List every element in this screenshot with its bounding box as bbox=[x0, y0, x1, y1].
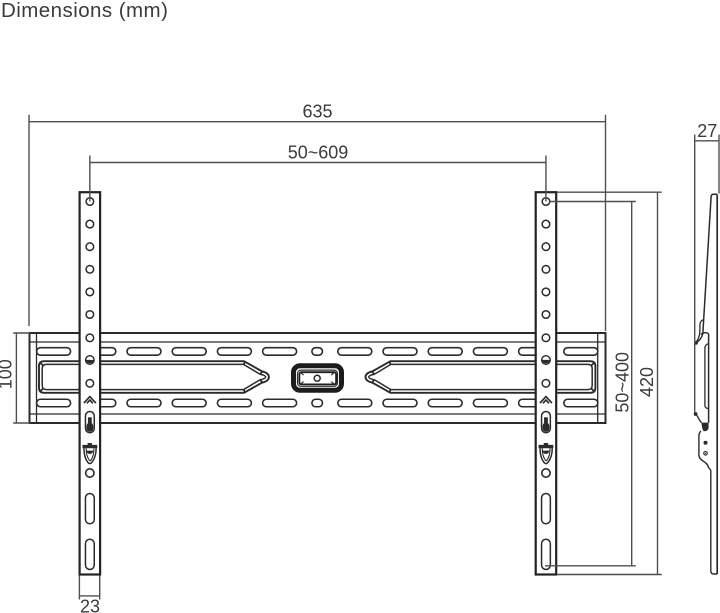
svg-text:Dimensions (mm): Dimensions (mm) bbox=[1, 0, 168, 22]
svg-text:50~609: 50~609 bbox=[288, 142, 349, 162]
svg-text:635: 635 bbox=[302, 102, 332, 122]
svg-text:50~400: 50~400 bbox=[612, 352, 632, 413]
svg-text:23: 23 bbox=[80, 597, 100, 613]
svg-text:27: 27 bbox=[697, 121, 717, 141]
svg-text:100: 100 bbox=[0, 359, 15, 389]
svg-text:420: 420 bbox=[637, 367, 657, 397]
